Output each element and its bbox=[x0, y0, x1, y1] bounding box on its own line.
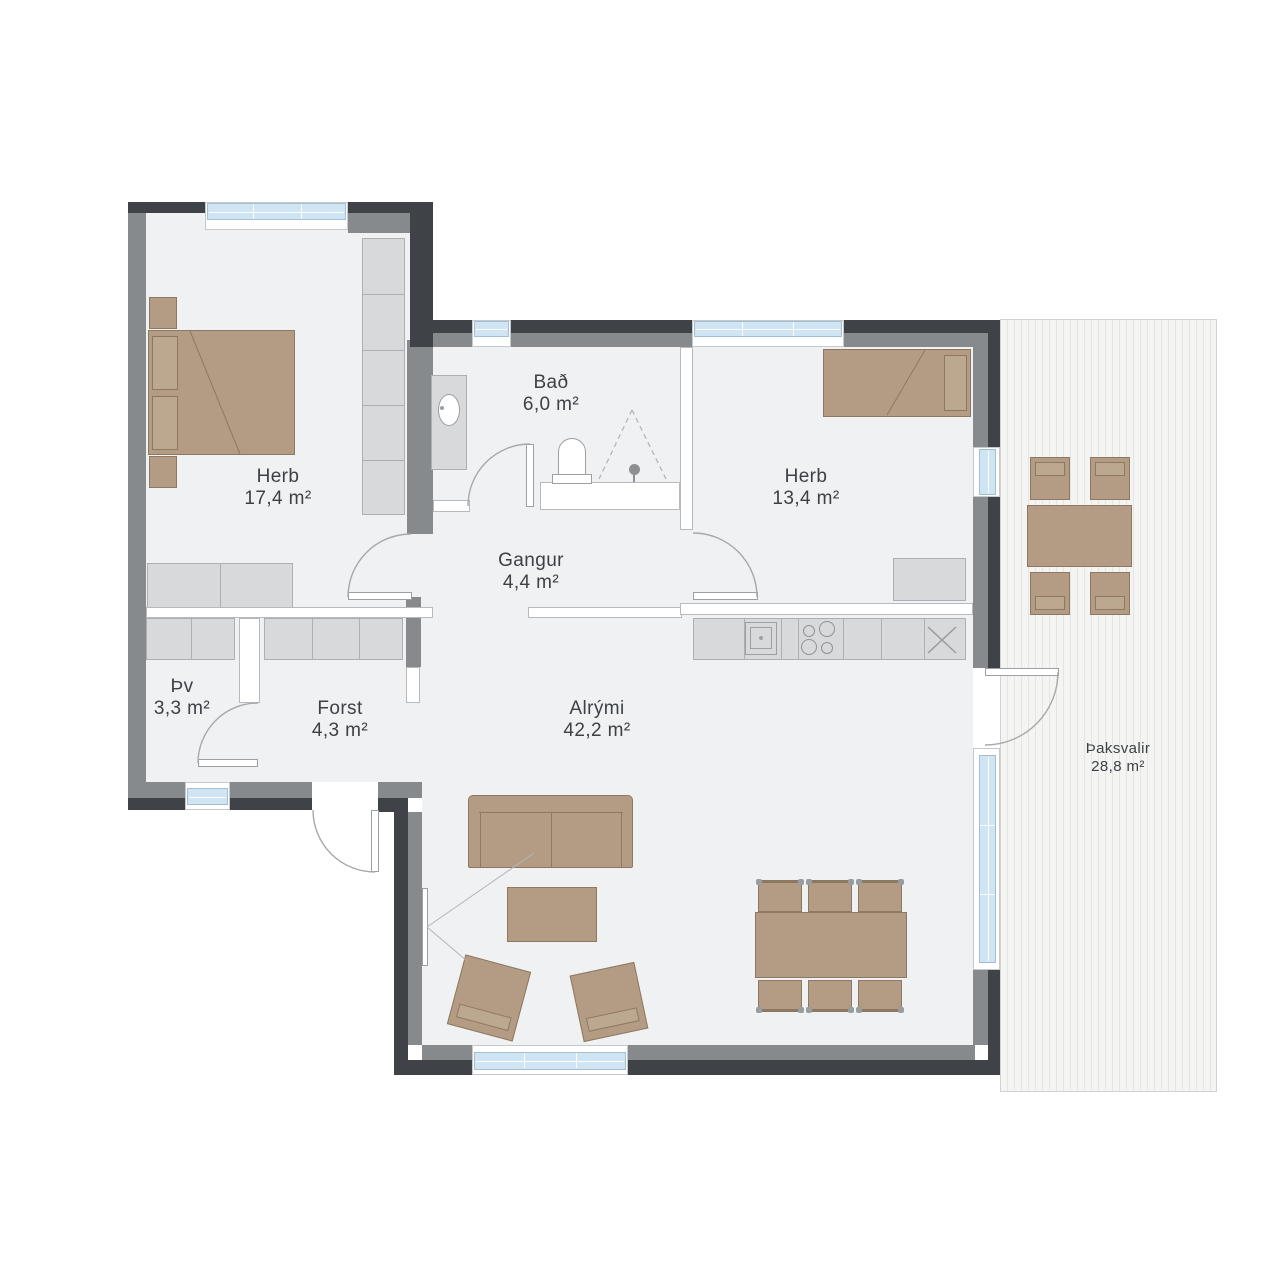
bed-fold-line bbox=[887, 350, 925, 415]
plan-annotations bbox=[0, 0, 1280, 1280]
bed-fold-line bbox=[190, 331, 240, 454]
shower-zone-line bbox=[632, 410, 666, 479]
door-swing-arc bbox=[348, 534, 411, 597]
door-swing-arc bbox=[198, 703, 258, 763]
door-swing-arc bbox=[693, 533, 757, 597]
tv-sightline bbox=[427, 853, 534, 927]
shower-zone-line bbox=[599, 410, 632, 479]
door-swing-arc bbox=[468, 444, 530, 506]
appliance-x-icon bbox=[928, 627, 956, 653]
tv-sightline bbox=[427, 927, 467, 961]
door-swing-arc bbox=[313, 810, 375, 872]
floor-plan: Herb 17,4 m² Bað 6,0 m² Herb 13,4 m² Gan… bbox=[0, 0, 1280, 1280]
door-swing-arc bbox=[985, 672, 1058, 745]
